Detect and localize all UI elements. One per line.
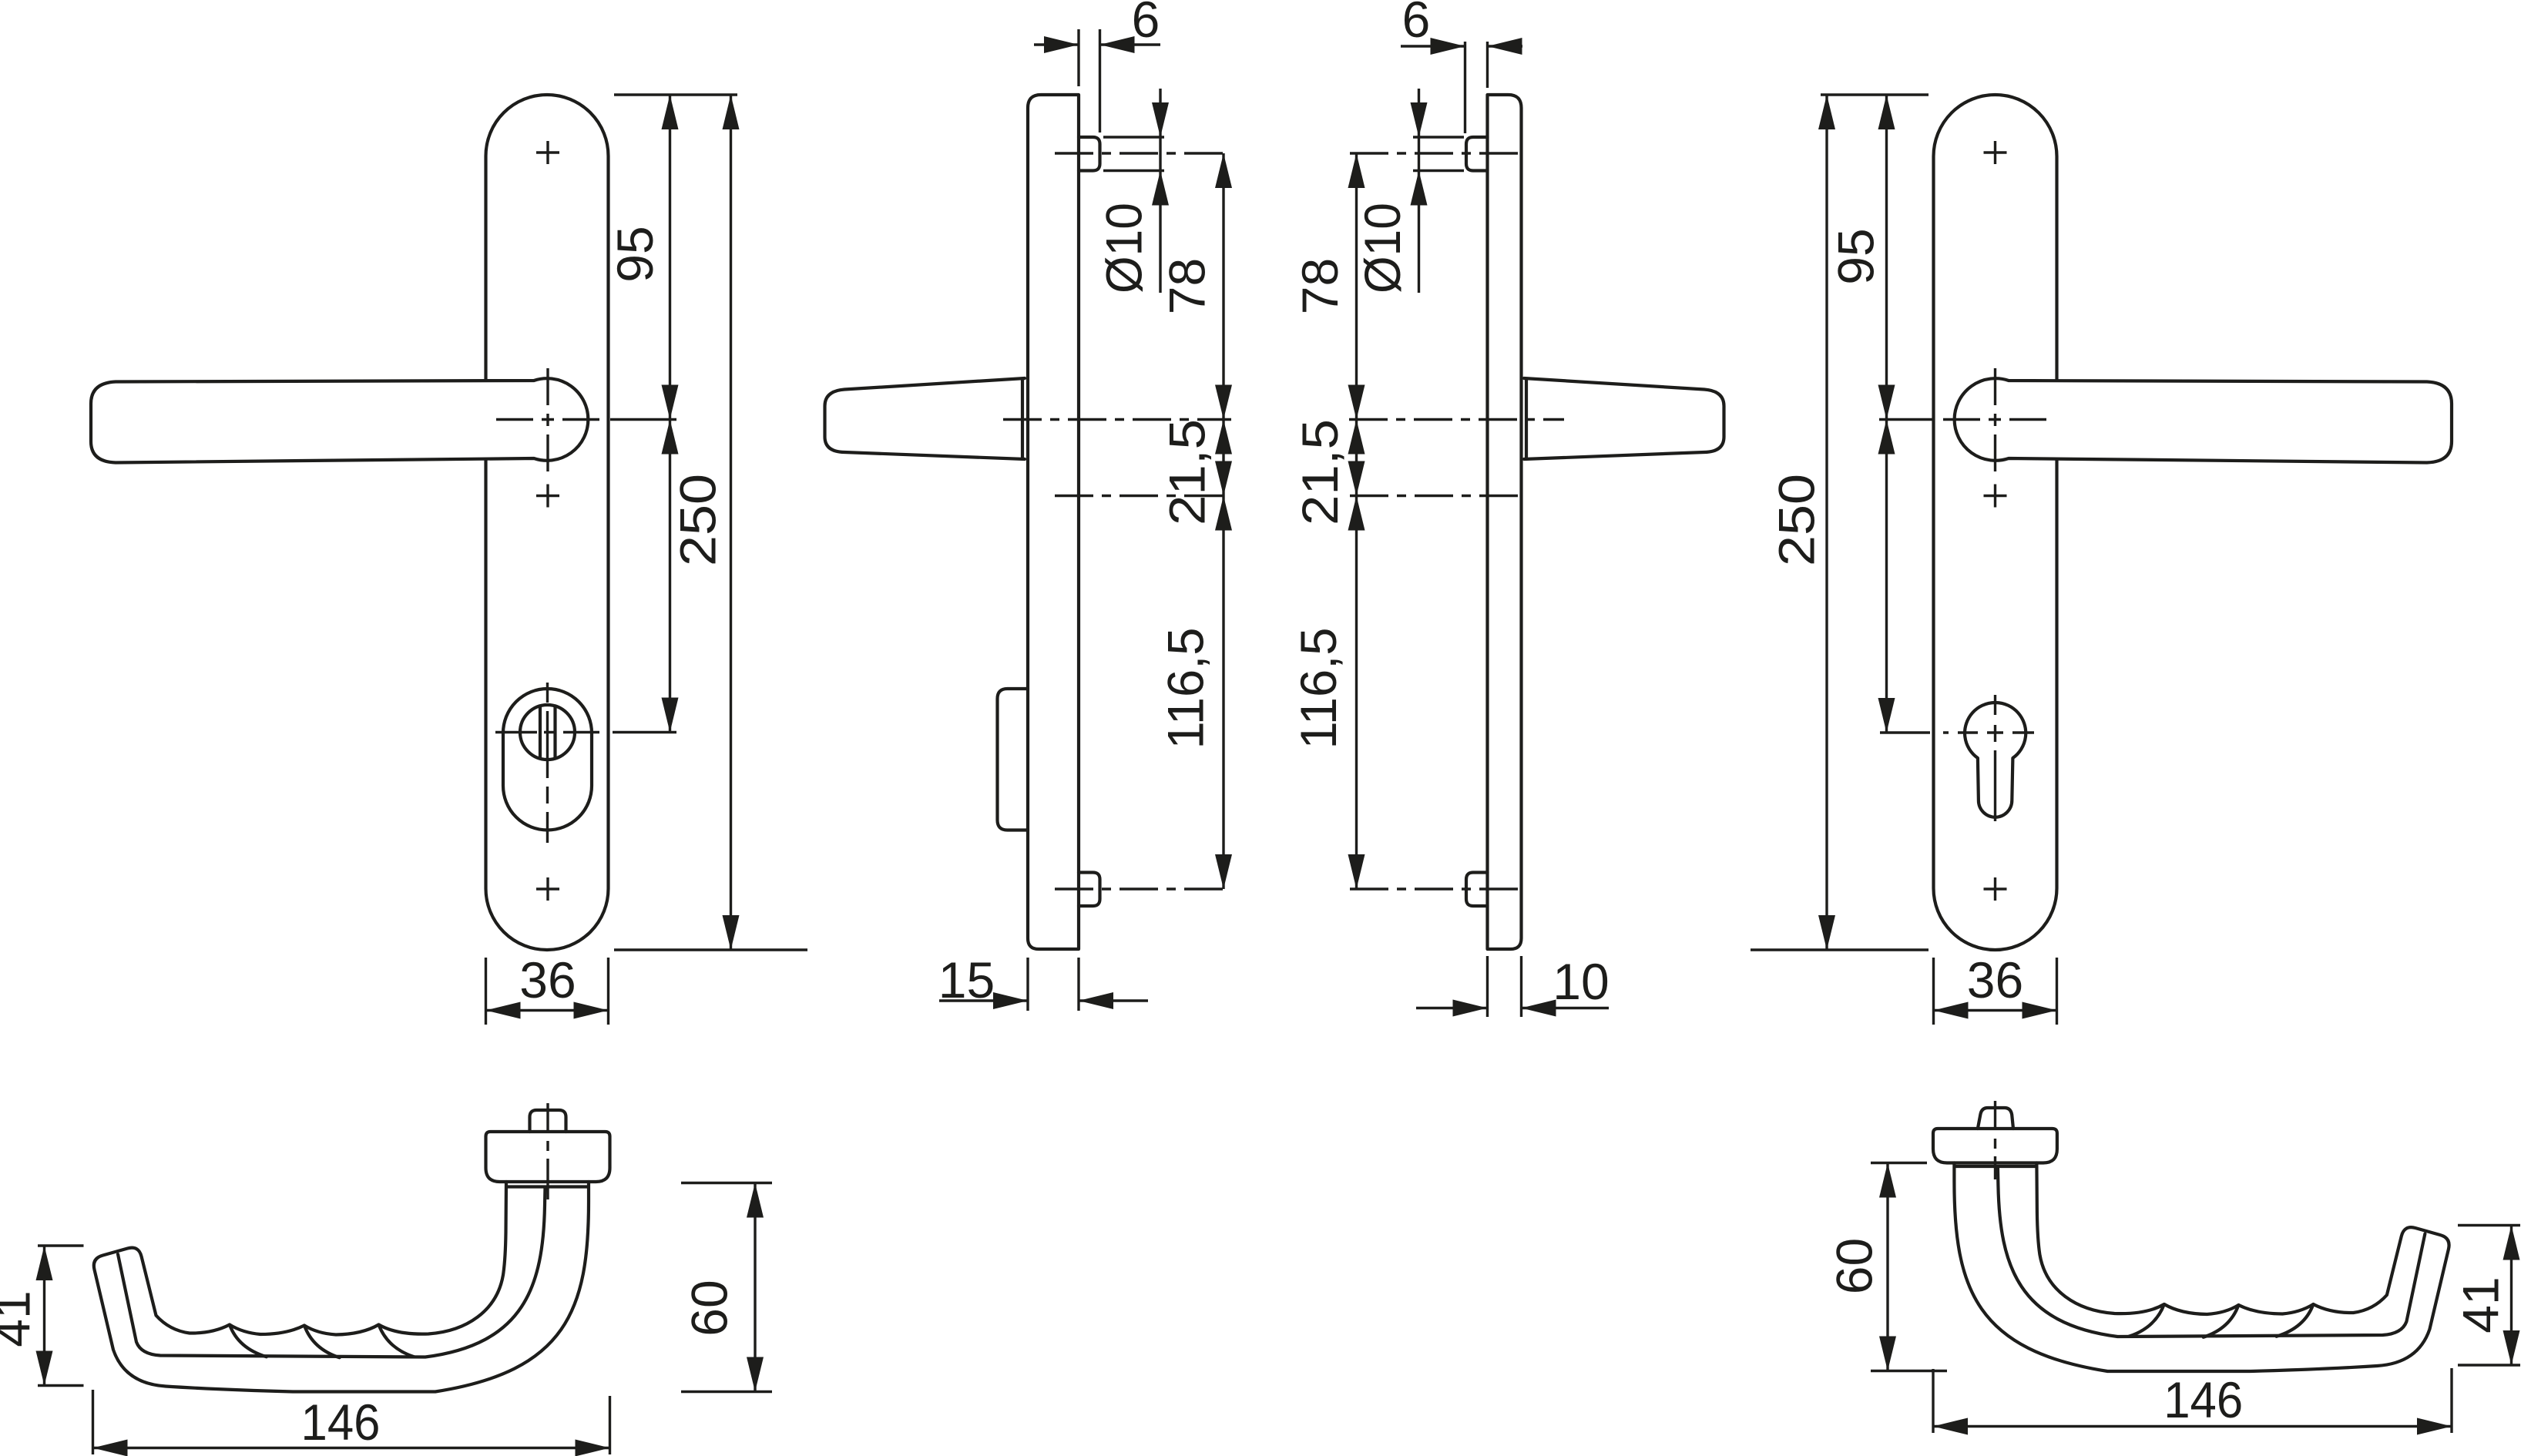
svg-text:60: 60 [1825,1238,1882,1294]
svg-text:95: 95 [606,226,663,282]
svg-text:78: 78 [1158,258,1215,314]
svg-text:41: 41 [0,1290,40,1347]
svg-text:36: 36 [519,951,576,1008]
svg-text:146: 146 [301,1394,381,1451]
svg-text:6: 6 [1132,0,1160,48]
svg-text:116,5: 116,5 [1156,628,1214,750]
svg-text:10: 10 [1553,953,1609,1010]
svg-text:146: 146 [2163,1371,2243,1428]
svg-text:95: 95 [1827,228,1884,284]
svg-text:Ø10: Ø10 [1354,203,1411,294]
svg-text:116,5: 116,5 [1290,628,1347,750]
svg-text:21,5: 21,5 [1158,419,1215,525]
svg-text:78: 78 [1291,258,1348,314]
svg-text:36: 36 [1967,951,2023,1008]
svg-text:250: 250 [669,474,726,566]
svg-text:15: 15 [938,951,995,1008]
svg-text:250: 250 [1767,474,1824,566]
svg-text:60: 60 [680,1280,737,1336]
svg-text:21,5: 21,5 [1291,419,1348,525]
svg-text:41: 41 [2452,1277,2509,1333]
svg-text:Ø10: Ø10 [1095,203,1152,294]
svg-text:6: 6 [1402,0,1431,48]
